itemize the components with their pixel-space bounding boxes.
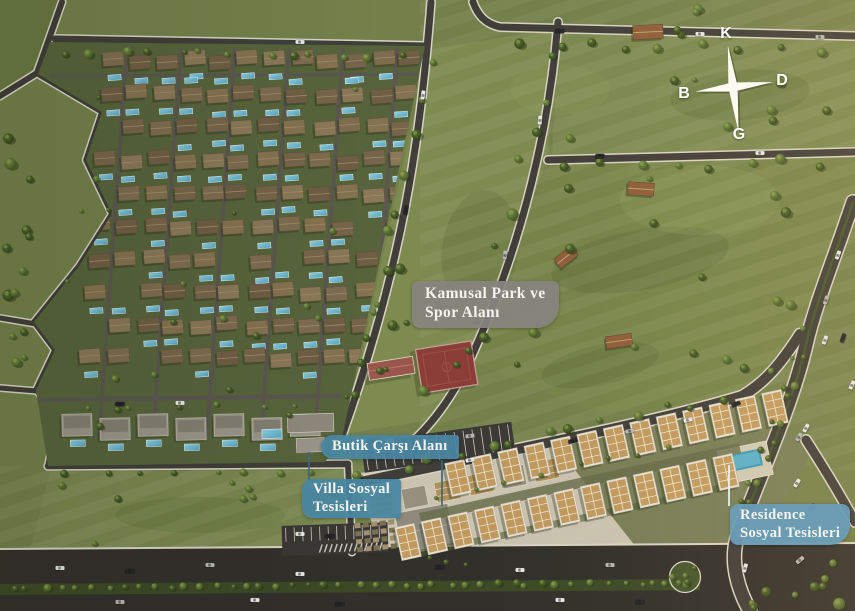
label-line: Residence	[740, 507, 840, 525]
label-villa-sosyal-tesisleri: Villa Sosyal Tesisleri	[302, 479, 401, 518]
label-leader-line	[441, 460, 443, 506]
compass-east-label: D	[776, 72, 788, 90]
compass-west-label: B	[678, 85, 690, 103]
label-leader-line	[308, 452, 310, 481]
label-leader-line	[728, 465, 730, 506]
label-line: Kamusal Park ve	[425, 285, 546, 304]
label-line: Tesisleri	[313, 499, 390, 517]
label-butik-carsi-alani: Butik Çarşı Alanı	[321, 435, 459, 459]
compass-north-label: K	[720, 25, 732, 43]
site-plan-screenshot: Kamusal Park ve Spor Alanı Butik Çarşı A…	[0, 0, 855, 611]
label-kamusal-park-spor-alani: Kamusal Park ve Spor Alanı	[412, 281, 559, 328]
label-line: Butik Çarşı Alanı	[332, 438, 448, 454]
label-line: Villa Sosyal	[313, 481, 390, 499]
label-line: Sosyal Tesisleri	[740, 525, 840, 543]
label-residence-sosyal-tesisleri: Residence Sosyal Tesisleri	[730, 504, 850, 545]
label-line: Spor Alanı	[425, 304, 546, 323]
compass-south-label: G	[733, 126, 745, 144]
